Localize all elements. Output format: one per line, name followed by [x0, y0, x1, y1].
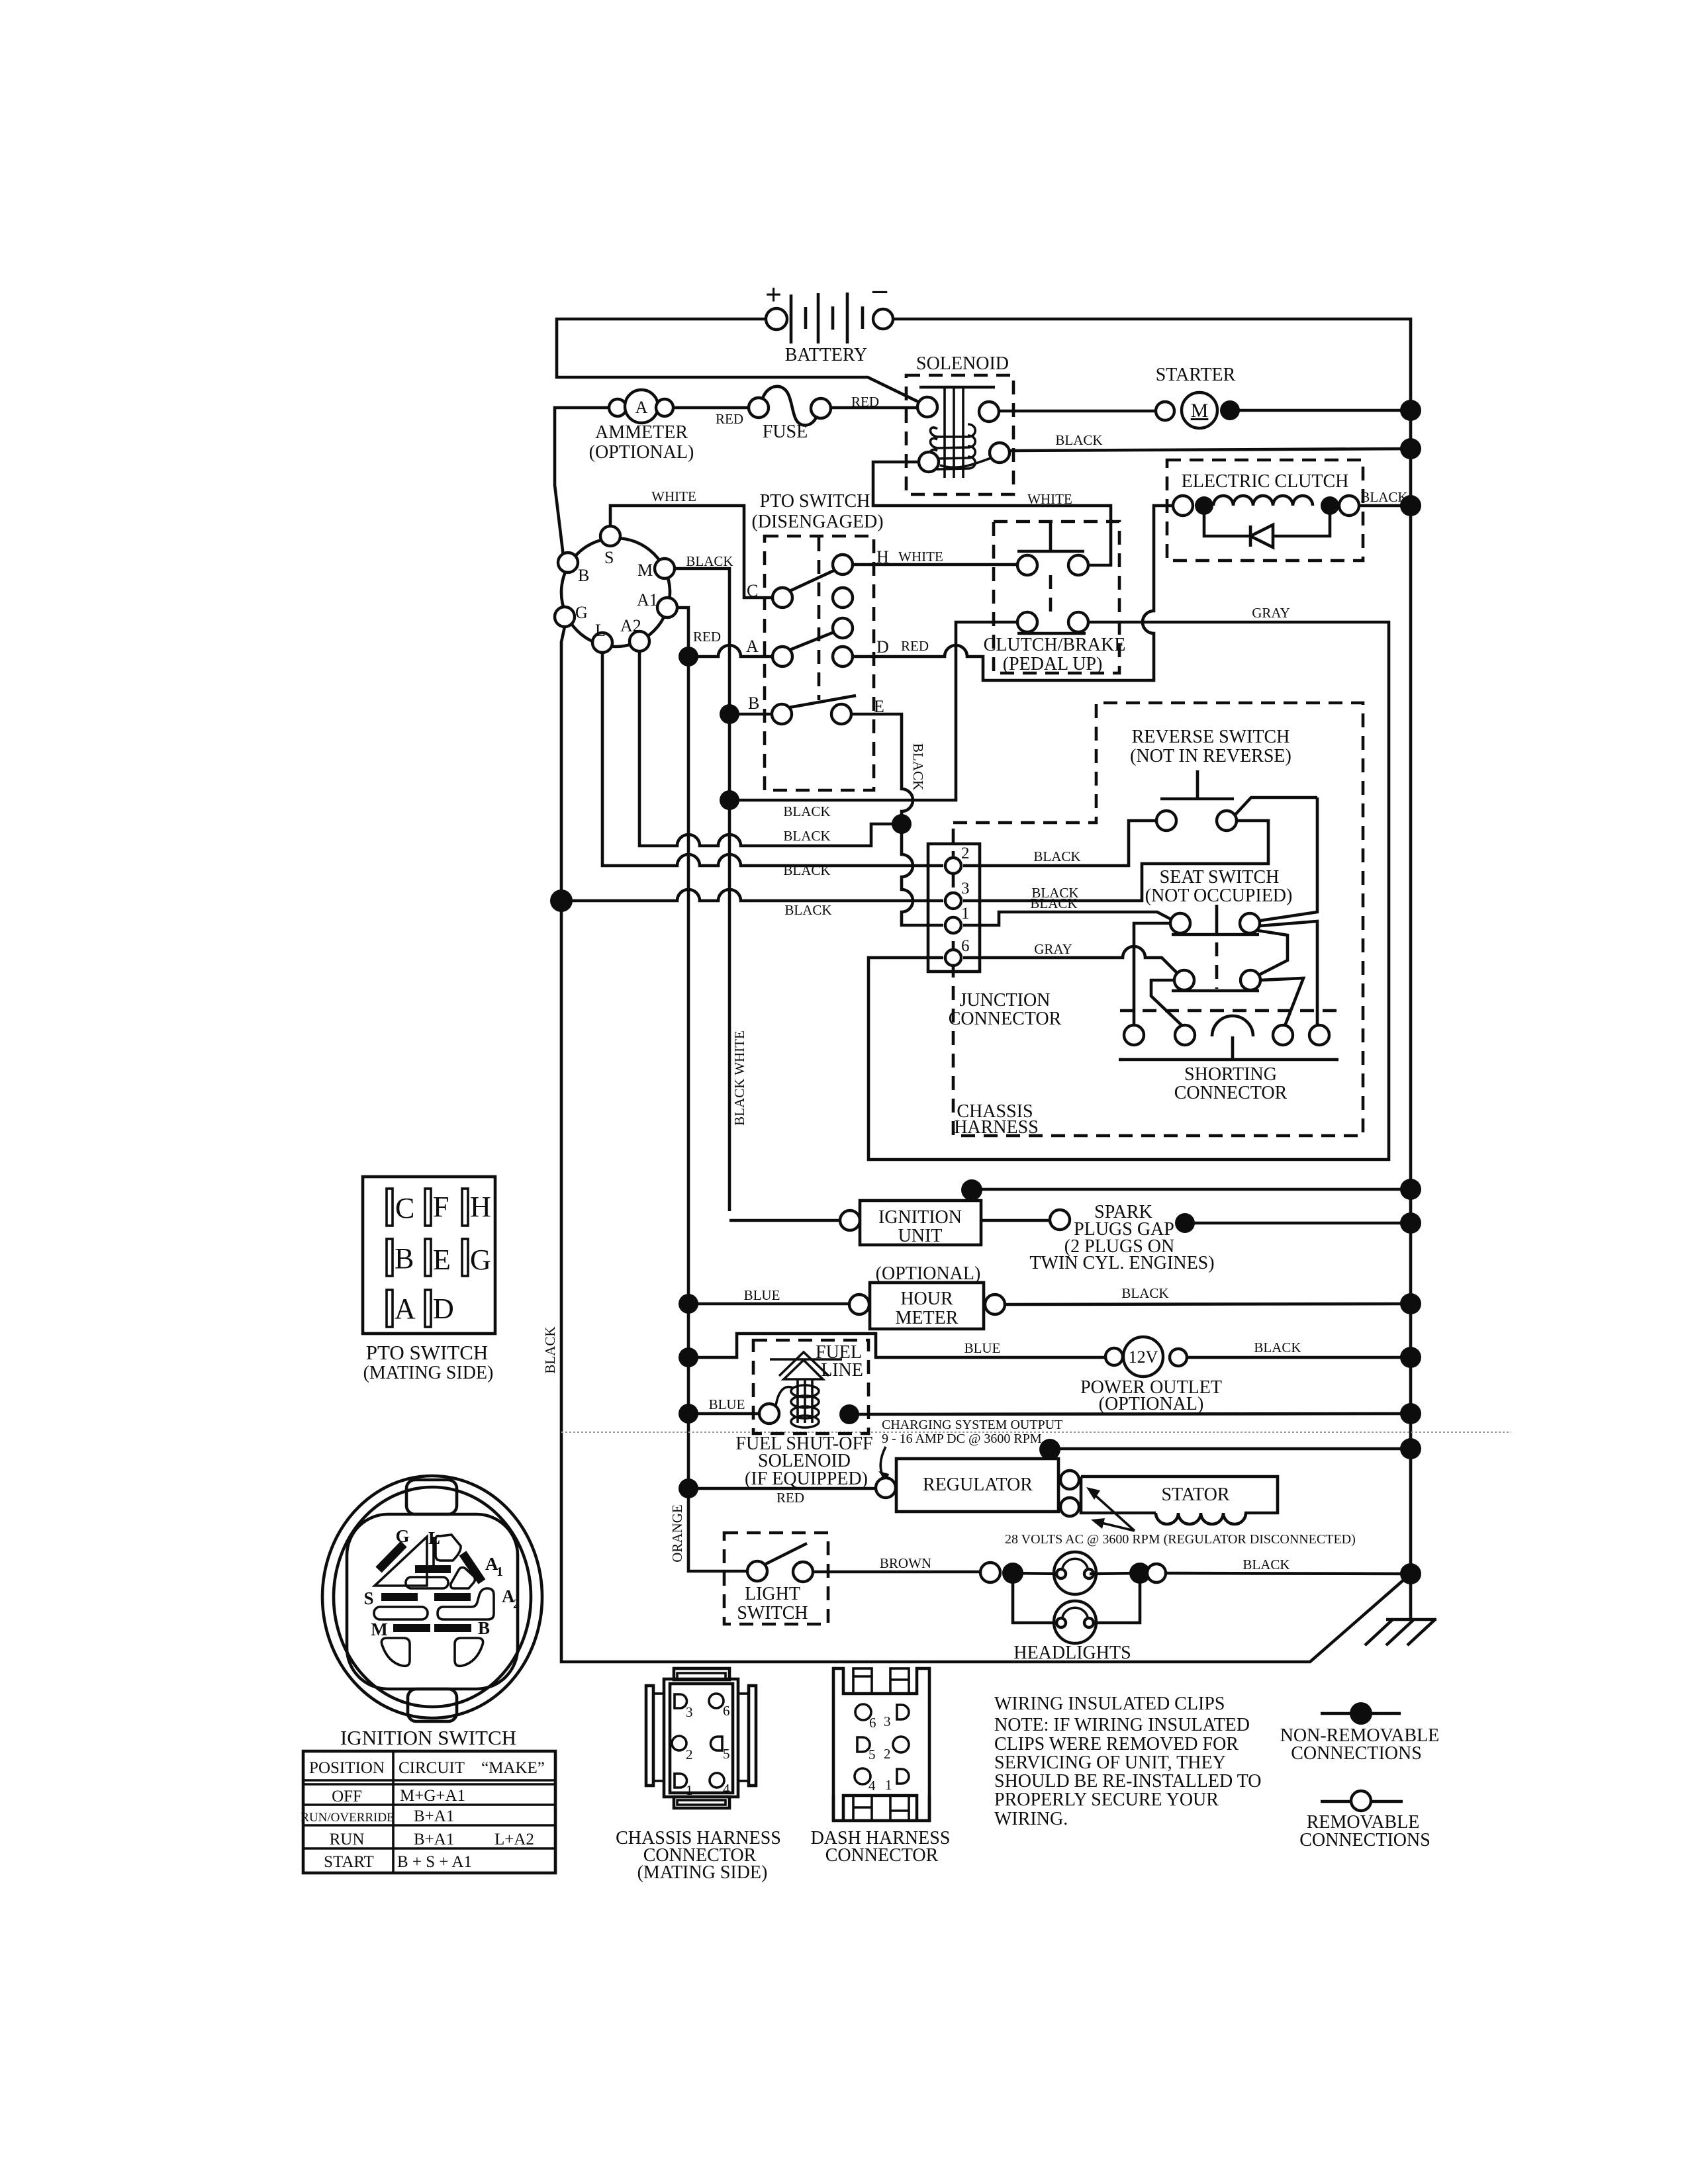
svg-text:+: +: [765, 279, 782, 311]
svg-text:HOUR: HOUR: [900, 1289, 953, 1309]
svg-text:BATTERY: BATTERY: [785, 345, 867, 365]
svg-text:PTO SWITCH: PTO SWITCH: [760, 491, 870, 512]
svg-text:GRAY: GRAY: [1034, 941, 1072, 957]
svg-text:(OPTIONAL): (OPTIONAL): [876, 1263, 981, 1284]
svg-text:6: 6: [723, 1703, 730, 1719]
svg-text:B: B: [395, 1242, 414, 1275]
svg-text:H: H: [470, 1191, 491, 1223]
svg-text:BLACK: BLACK: [783, 803, 830, 819]
svg-text:B + S + A1: B + S + A1: [397, 1853, 472, 1871]
svg-text:BLACK: BLACK: [1254, 1340, 1301, 1355]
svg-text:S: S: [604, 548, 614, 567]
svg-text:BLACK: BLACK: [910, 743, 926, 790]
svg-text:BLACK: BLACK: [1243, 1557, 1289, 1572]
svg-text:BROWN: BROWN: [880, 1555, 931, 1571]
svg-text:9 - 16 AMP DC @ 3600 RPM: 9 - 16 AMP DC @ 3600 RPM: [882, 1432, 1042, 1446]
svg-text:(DISENGAGED): (DISENGAGED): [751, 512, 883, 532]
svg-text:BLACK: BLACK: [1030, 895, 1077, 911]
svg-text:BLUE: BLUE: [744, 1287, 780, 1303]
svg-text:SHOULD BE RE-INSTALLED TO: SHOULD BE RE-INSTALLED TO: [994, 1771, 1261, 1792]
svg-text:A: A: [746, 637, 759, 656]
svg-text:1: 1: [885, 1777, 892, 1793]
svg-text:6: 6: [869, 1715, 876, 1731]
svg-text:BLUE: BLUE: [709, 1396, 745, 1412]
svg-text:4: 4: [868, 1778, 876, 1794]
svg-text:STARTER: STARTER: [1156, 365, 1236, 385]
svg-text:JUNCTION: JUNCTION: [960, 990, 1051, 1011]
svg-text:METER: METER: [896, 1308, 959, 1328]
svg-text:STATOR: STATOR: [1161, 1484, 1229, 1505]
svg-text:5: 5: [868, 1747, 876, 1762]
svg-text:(IF EQUIPPED): (IF EQUIPPED): [745, 1469, 868, 1489]
svg-text:3: 3: [686, 1704, 693, 1720]
svg-text:SOLENOID: SOLENOID: [916, 353, 1009, 374]
svg-text:2: 2: [513, 1597, 520, 1612]
svg-text:5: 5: [723, 1746, 730, 1762]
svg-text:BLACK: BLACK: [1033, 848, 1080, 864]
svg-text:G: G: [575, 603, 588, 622]
svg-text:(OPTIONAL): (OPTIONAL): [1099, 1394, 1204, 1414]
svg-text:GRAY: GRAY: [1252, 605, 1290, 621]
svg-text:1: 1: [961, 905, 970, 923]
svg-text:A1: A1: [637, 590, 658, 610]
svg-text:M: M: [1191, 400, 1209, 422]
svg-text:L+A2: L+A2: [494, 1831, 534, 1848]
svg-text:B: B: [478, 1618, 490, 1638]
svg-text:SERVICING OF UNIT, THEY: SERVICING OF UNIT, THEY: [994, 1752, 1226, 1773]
svg-text:START: START: [324, 1853, 374, 1871]
svg-text:RED: RED: [776, 1490, 804, 1506]
svg-text:NOTE: IF WIRING INSULATED: NOTE: IF WIRING INSULATED: [994, 1715, 1250, 1735]
svg-text:M: M: [371, 1619, 387, 1639]
svg-text:C: C: [747, 581, 758, 600]
svg-text:LIGHT: LIGHT: [745, 1584, 800, 1604]
svg-text:RED: RED: [693, 629, 721, 645]
svg-text:D: D: [876, 637, 889, 657]
svg-text:HEADLIGHTS: HEADLIGHTS: [1013, 1643, 1131, 1663]
svg-text:(NOT OCCUPIED): (NOT OCCUPIED): [1145, 886, 1293, 906]
svg-text:SEAT SWITCH: SEAT SWITCH: [1160, 867, 1280, 887]
svg-text:M+G+A1: M+G+A1: [400, 1787, 465, 1805]
svg-text:(MATING SIDE): (MATING SIDE): [637, 1862, 768, 1883]
svg-text:A: A: [635, 398, 648, 417]
svg-text:CIRCUIT: CIRCUIT: [399, 1759, 465, 1777]
svg-text:BLACK: BLACK: [542, 1326, 558, 1373]
svg-text:CONNECTIONS: CONNECTIONS: [1291, 1743, 1422, 1764]
svg-text:(MATING SIDE): (MATING SIDE): [363, 1363, 494, 1383]
svg-text:TWIN CYL. ENGINES): TWIN CYL. ENGINES): [1029, 1253, 1214, 1273]
svg-text:A2: A2: [620, 616, 641, 635]
svg-text:ELECTRIC CLUTCH: ELECTRIC CLUTCH: [1182, 471, 1349, 492]
svg-text:POSITION: POSITION: [309, 1759, 385, 1777]
svg-text:CONNECTOR: CONNECTOR: [1174, 1083, 1288, 1103]
svg-text:C: C: [395, 1192, 414, 1224]
svg-text:1: 1: [686, 1782, 693, 1798]
svg-text:WHITE: WHITE: [651, 488, 696, 504]
svg-text:ORANGE: ORANGE: [669, 1504, 685, 1563]
svg-text:BLACK: BLACK: [686, 553, 733, 569]
svg-text:3: 3: [884, 1713, 891, 1729]
svg-text:3: 3: [961, 880, 970, 897]
svg-text:CHARGING SYSTEM OUTPUT: CHARGING SYSTEM OUTPUT: [882, 1418, 1062, 1432]
svg-text:RED: RED: [901, 638, 929, 654]
svg-text:D: D: [433, 1293, 454, 1325]
svg-text:B: B: [748, 694, 759, 713]
svg-text:BLACK: BLACK: [783, 862, 830, 878]
svg-text:F: F: [433, 1191, 449, 1223]
svg-text:IGNITION: IGNITION: [878, 1207, 962, 1228]
svg-text:A: A: [395, 1293, 416, 1325]
svg-text:SHORTING: SHORTING: [1184, 1064, 1277, 1085]
svg-text:HARNESS: HARNESS: [954, 1117, 1039, 1138]
svg-text:BLACK: BLACK: [1055, 432, 1102, 448]
svg-text:RUN/OVERRIDE: RUN/OVERRIDE: [301, 1811, 394, 1825]
svg-text:S: S: [363, 1588, 373, 1608]
svg-text:OFF: OFF: [332, 1788, 362, 1805]
svg-text:RED: RED: [716, 411, 743, 427]
svg-text:IGNITION SWITCH: IGNITION SWITCH: [340, 1726, 516, 1749]
svg-text:CLUTCH/BRAKE: CLUTCH/BRAKE: [984, 635, 1126, 655]
svg-text:4: 4: [723, 1781, 730, 1797]
svg-text:“MAKE”: “MAKE”: [481, 1759, 545, 1777]
svg-text:WHITE: WHITE: [1027, 491, 1072, 507]
svg-text:PROPERLY SECURE YOUR: PROPERLY SECURE YOUR: [994, 1790, 1219, 1810]
svg-text:BLACK: BLACK: [1121, 1285, 1168, 1301]
svg-text:M: M: [637, 561, 653, 580]
svg-text:WIRING.: WIRING.: [994, 1809, 1068, 1829]
svg-text:WHITE: WHITE: [898, 549, 943, 565]
svg-text:B+A1: B+A1: [414, 1831, 454, 1848]
svg-text:2: 2: [884, 1746, 891, 1762]
svg-text:B: B: [578, 566, 589, 585]
svg-text:FUSE: FUSE: [763, 422, 808, 442]
svg-text:LINE: LINE: [821, 1360, 863, 1381]
svg-text:BLUE: BLUE: [964, 1340, 1001, 1356]
svg-text:(OPTIONAL): (OPTIONAL): [589, 442, 694, 463]
svg-text:AMMETER: AMMETER: [595, 422, 688, 443]
svg-text:CONNECTOR: CONNECTOR: [949, 1009, 1062, 1029]
svg-text:REGULATOR: REGULATOR: [923, 1475, 1033, 1495]
svg-text:CLIPS WERE REMOVED FOR: CLIPS WERE REMOVED FOR: [994, 1734, 1239, 1754]
svg-text:WIRING INSULATED CLIPS: WIRING INSULATED CLIPS: [994, 1694, 1225, 1714]
svg-text:28 VOLTS AC @ 3600 RPM (REGULA: 28 VOLTS AC @ 3600 RPM (REGULATOR DISCON…: [1005, 1532, 1356, 1547]
svg-text:SWITCH: SWITCH: [737, 1603, 808, 1623]
svg-text:PTO SWITCH: PTO SWITCH: [366, 1341, 489, 1364]
svg-text:UNIT: UNIT: [898, 1226, 943, 1246]
svg-text:E: E: [433, 1244, 451, 1276]
svg-text:12V: 12V: [1129, 1347, 1158, 1367]
svg-text:REVERSE SWITCH: REVERSE SWITCH: [1132, 727, 1290, 747]
svg-text:(NOT IN REVERSE): (NOT IN REVERSE): [1130, 746, 1291, 766]
svg-text:1: 1: [496, 1565, 503, 1579]
svg-text:6: 6: [961, 937, 970, 955]
svg-text:BLACK: BLACK: [783, 828, 830, 844]
svg-text:G: G: [470, 1244, 491, 1276]
svg-text:CONNECTOR: CONNECTOR: [825, 1845, 939, 1866]
svg-text:BLACK WHITE: BLACK WHITE: [731, 1030, 747, 1126]
svg-text:(PEDAL UP): (PEDAL UP): [1003, 654, 1103, 674]
svg-text:2: 2: [961, 844, 970, 862]
svg-text:RUN: RUN: [330, 1831, 365, 1848]
svg-text:–: –: [872, 273, 888, 306]
svg-text:RED: RED: [851, 394, 879, 410]
svg-text:CONNECTIONS: CONNECTIONS: [1299, 1830, 1430, 1850]
svg-text:2: 2: [686, 1747, 693, 1762]
svg-text:B+A1: B+A1: [414, 1807, 454, 1825]
svg-text:BLACK: BLACK: [784, 902, 831, 918]
svg-text:L: L: [595, 621, 606, 640]
